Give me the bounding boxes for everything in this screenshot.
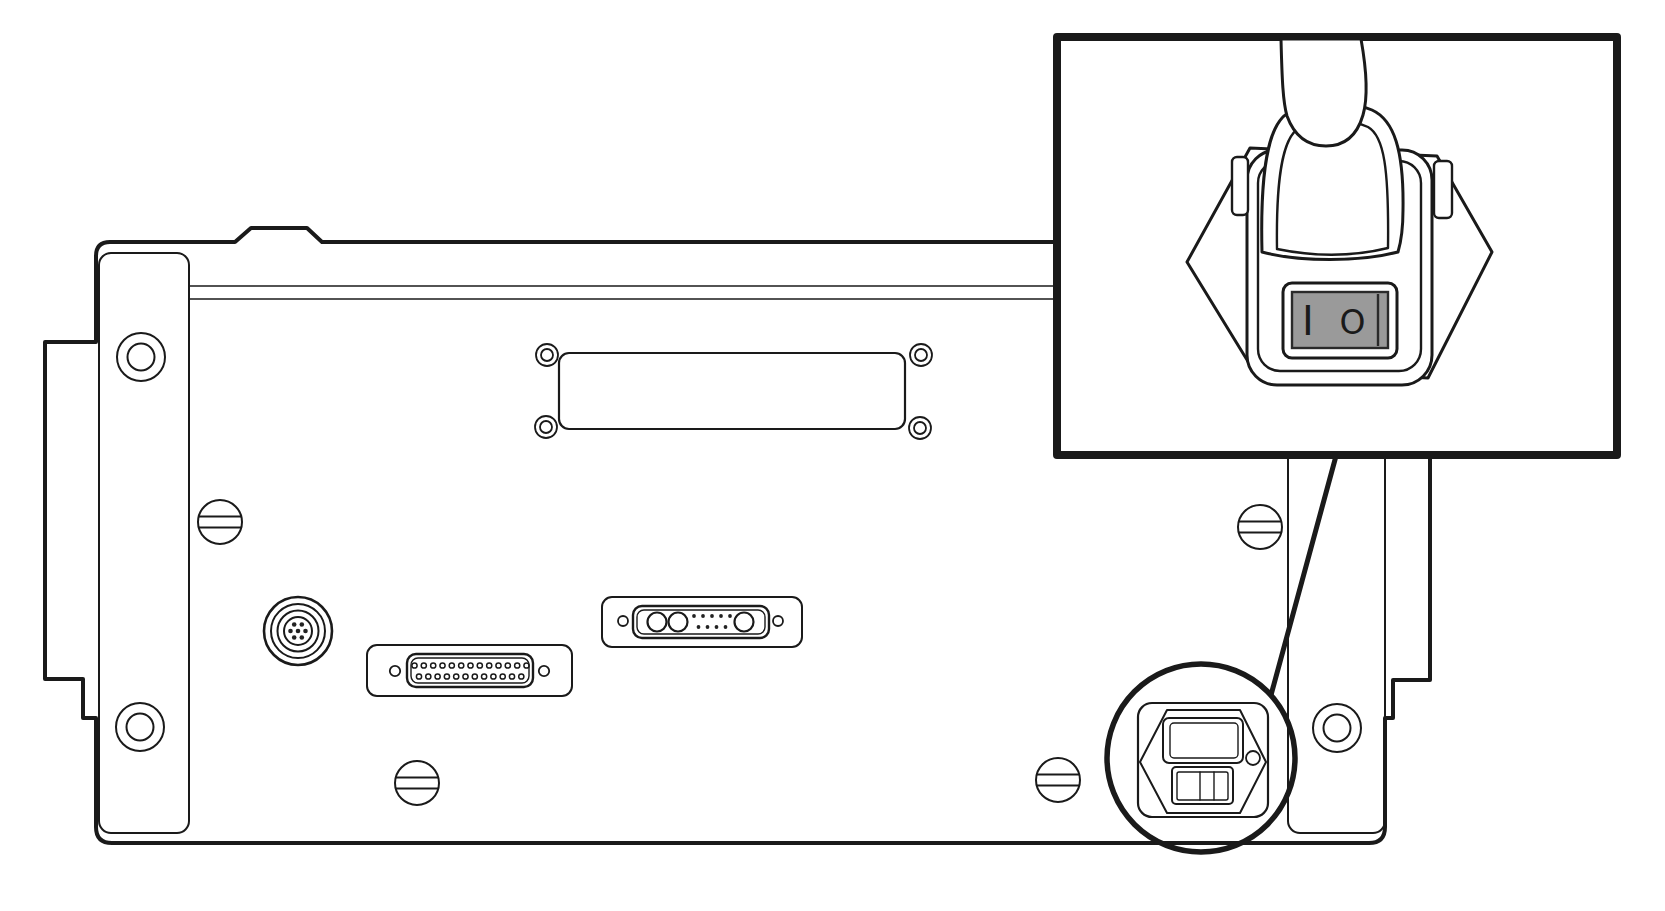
- rocker-switch: I O: [1283, 283, 1397, 358]
- plug-side-tab-left: [1232, 157, 1248, 215]
- inlet-latch-hole: [1246, 751, 1260, 765]
- rear-panel-diagram: I O: [0, 0, 1665, 911]
- rocker-off-label: O: [1340, 303, 1366, 342]
- inset-magnified-view: I O: [1057, 37, 1617, 455]
- plug-side-tab-right: [1434, 161, 1452, 218]
- power-cord-cable: [1281, 39, 1366, 146]
- rocker-on-label: I: [1302, 298, 1314, 344]
- diagram-canvas: I O: [0, 0, 1665, 911]
